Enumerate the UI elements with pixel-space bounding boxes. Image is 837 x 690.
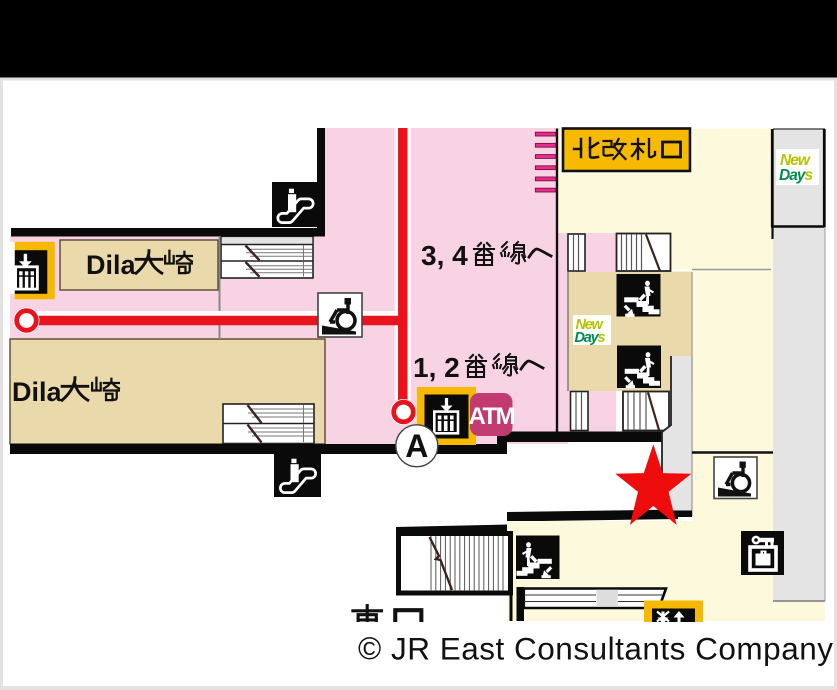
svg-text:Days: Days [779, 167, 813, 184]
svg-text:A: A [405, 428, 428, 464]
svg-text:Dila: Dila [12, 377, 63, 407]
svg-text:3, 4: 3, 4 [421, 240, 468, 271]
svg-text:© JR East Consultants Company: © JR East Consultants Company [358, 631, 833, 667]
svg-text:Days: Days [575, 330, 606, 346]
svg-text:ATM: ATM [468, 403, 514, 430]
svg-text:1, 2: 1, 2 [413, 352, 460, 383]
svg-text:Dila: Dila [86, 250, 137, 280]
